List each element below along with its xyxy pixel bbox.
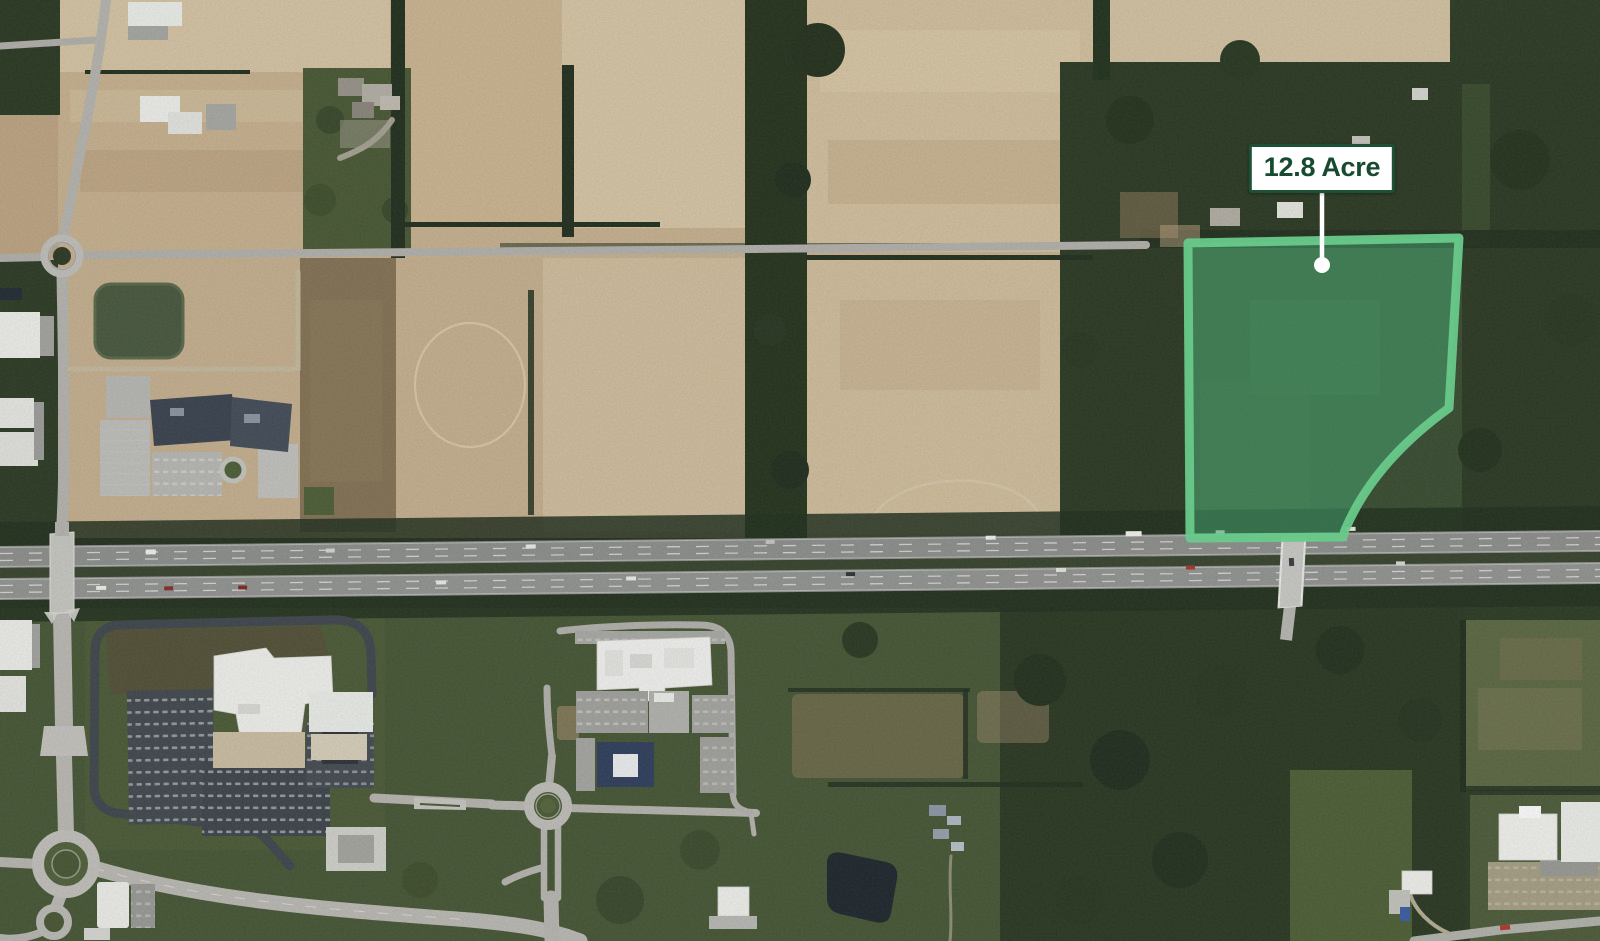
marker-dot[interactable] [1314, 257, 1330, 273]
parcel-area-label[interactable]: 12.8 Acre [1249, 144, 1395, 193]
parcel-area-label-text: 12.8 Acre [1264, 152, 1380, 182]
parcel-overlay [0, 0, 1600, 941]
map-viewport[interactable]: 12.8 Acre [0, 0, 1600, 941]
parcel-highlight[interactable] [1188, 238, 1459, 538]
